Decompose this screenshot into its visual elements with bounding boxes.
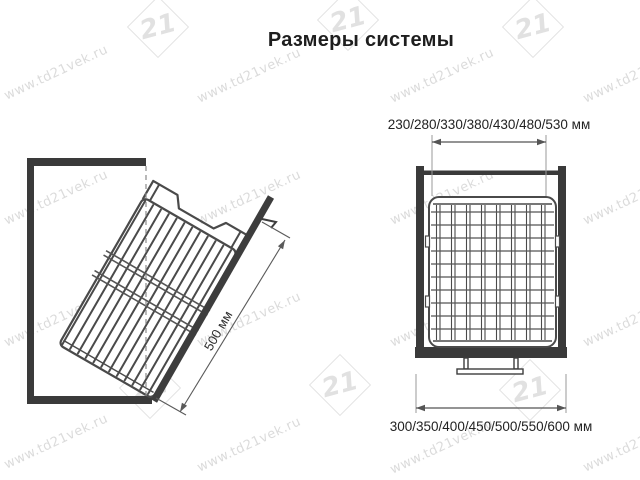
wire-basket-side	[54, 178, 252, 402]
bottom-extension-lines	[416, 374, 566, 413]
dimension-bottom-width	[416, 405, 566, 411]
basket-width-dimension-label: 230/280/330/380/430/480/530 мм	[388, 117, 591, 132]
page-title: Размеры системы	[268, 29, 454, 52]
top-extension-lines	[432, 135, 546, 196]
right-diagram: 230/280/330/380/430/480/530 мм	[388, 117, 593, 434]
pedestal	[457, 358, 523, 374]
dimensions-drawing: 500 мм 230/280/330/380/430/480/530 мм	[0, 0, 640, 480]
cabinet-width-dimension-label: 300/350/400/450/500/550/600 мм	[390, 419, 593, 434]
left-diagram: 500 мм	[27, 158, 290, 415]
dimension-top-width	[432, 139, 546, 145]
wire-basket-front	[426, 197, 560, 347]
